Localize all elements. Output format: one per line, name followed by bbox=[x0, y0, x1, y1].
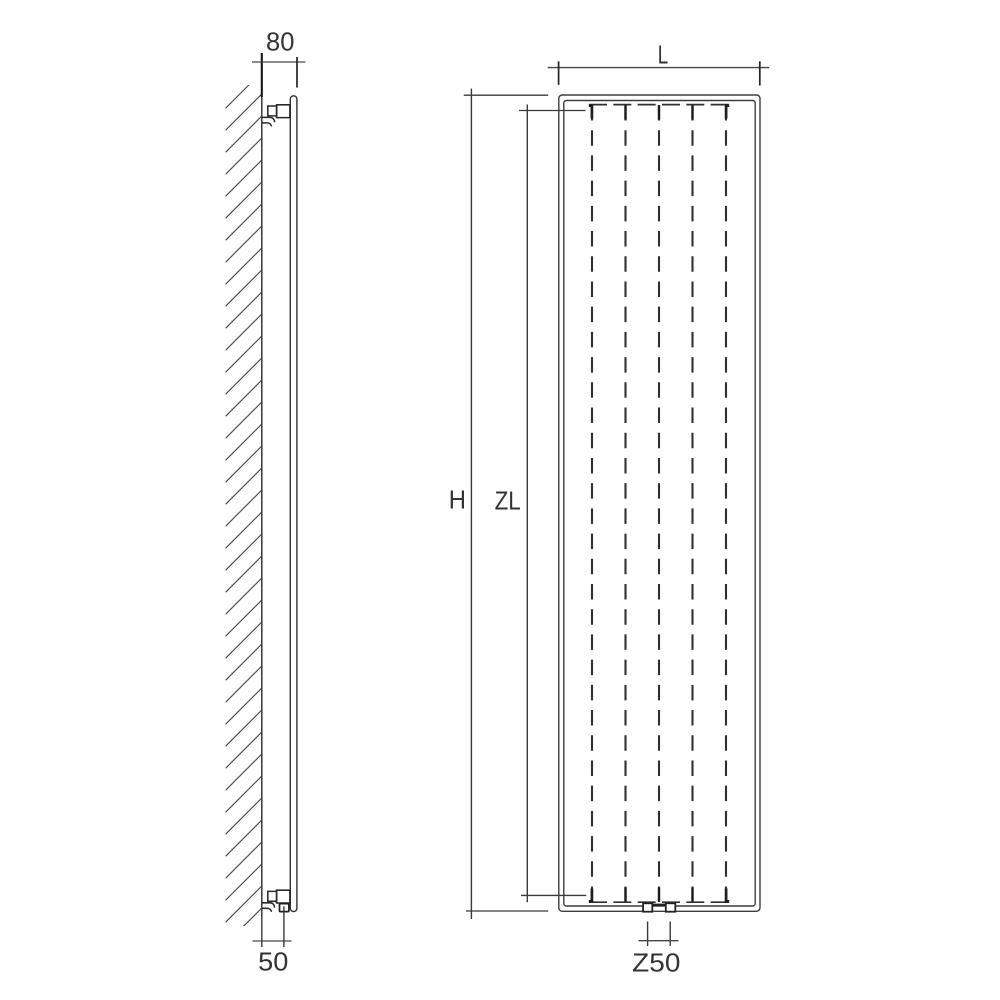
svg-text:ZL: ZL bbox=[495, 486, 521, 516]
svg-text:H: H bbox=[449, 485, 466, 515]
svg-text:50: 50 bbox=[258, 947, 288, 977]
svg-text:L: L bbox=[658, 39, 668, 69]
svg-text:Z50: Z50 bbox=[632, 947, 680, 977]
svg-text:80: 80 bbox=[266, 26, 294, 56]
